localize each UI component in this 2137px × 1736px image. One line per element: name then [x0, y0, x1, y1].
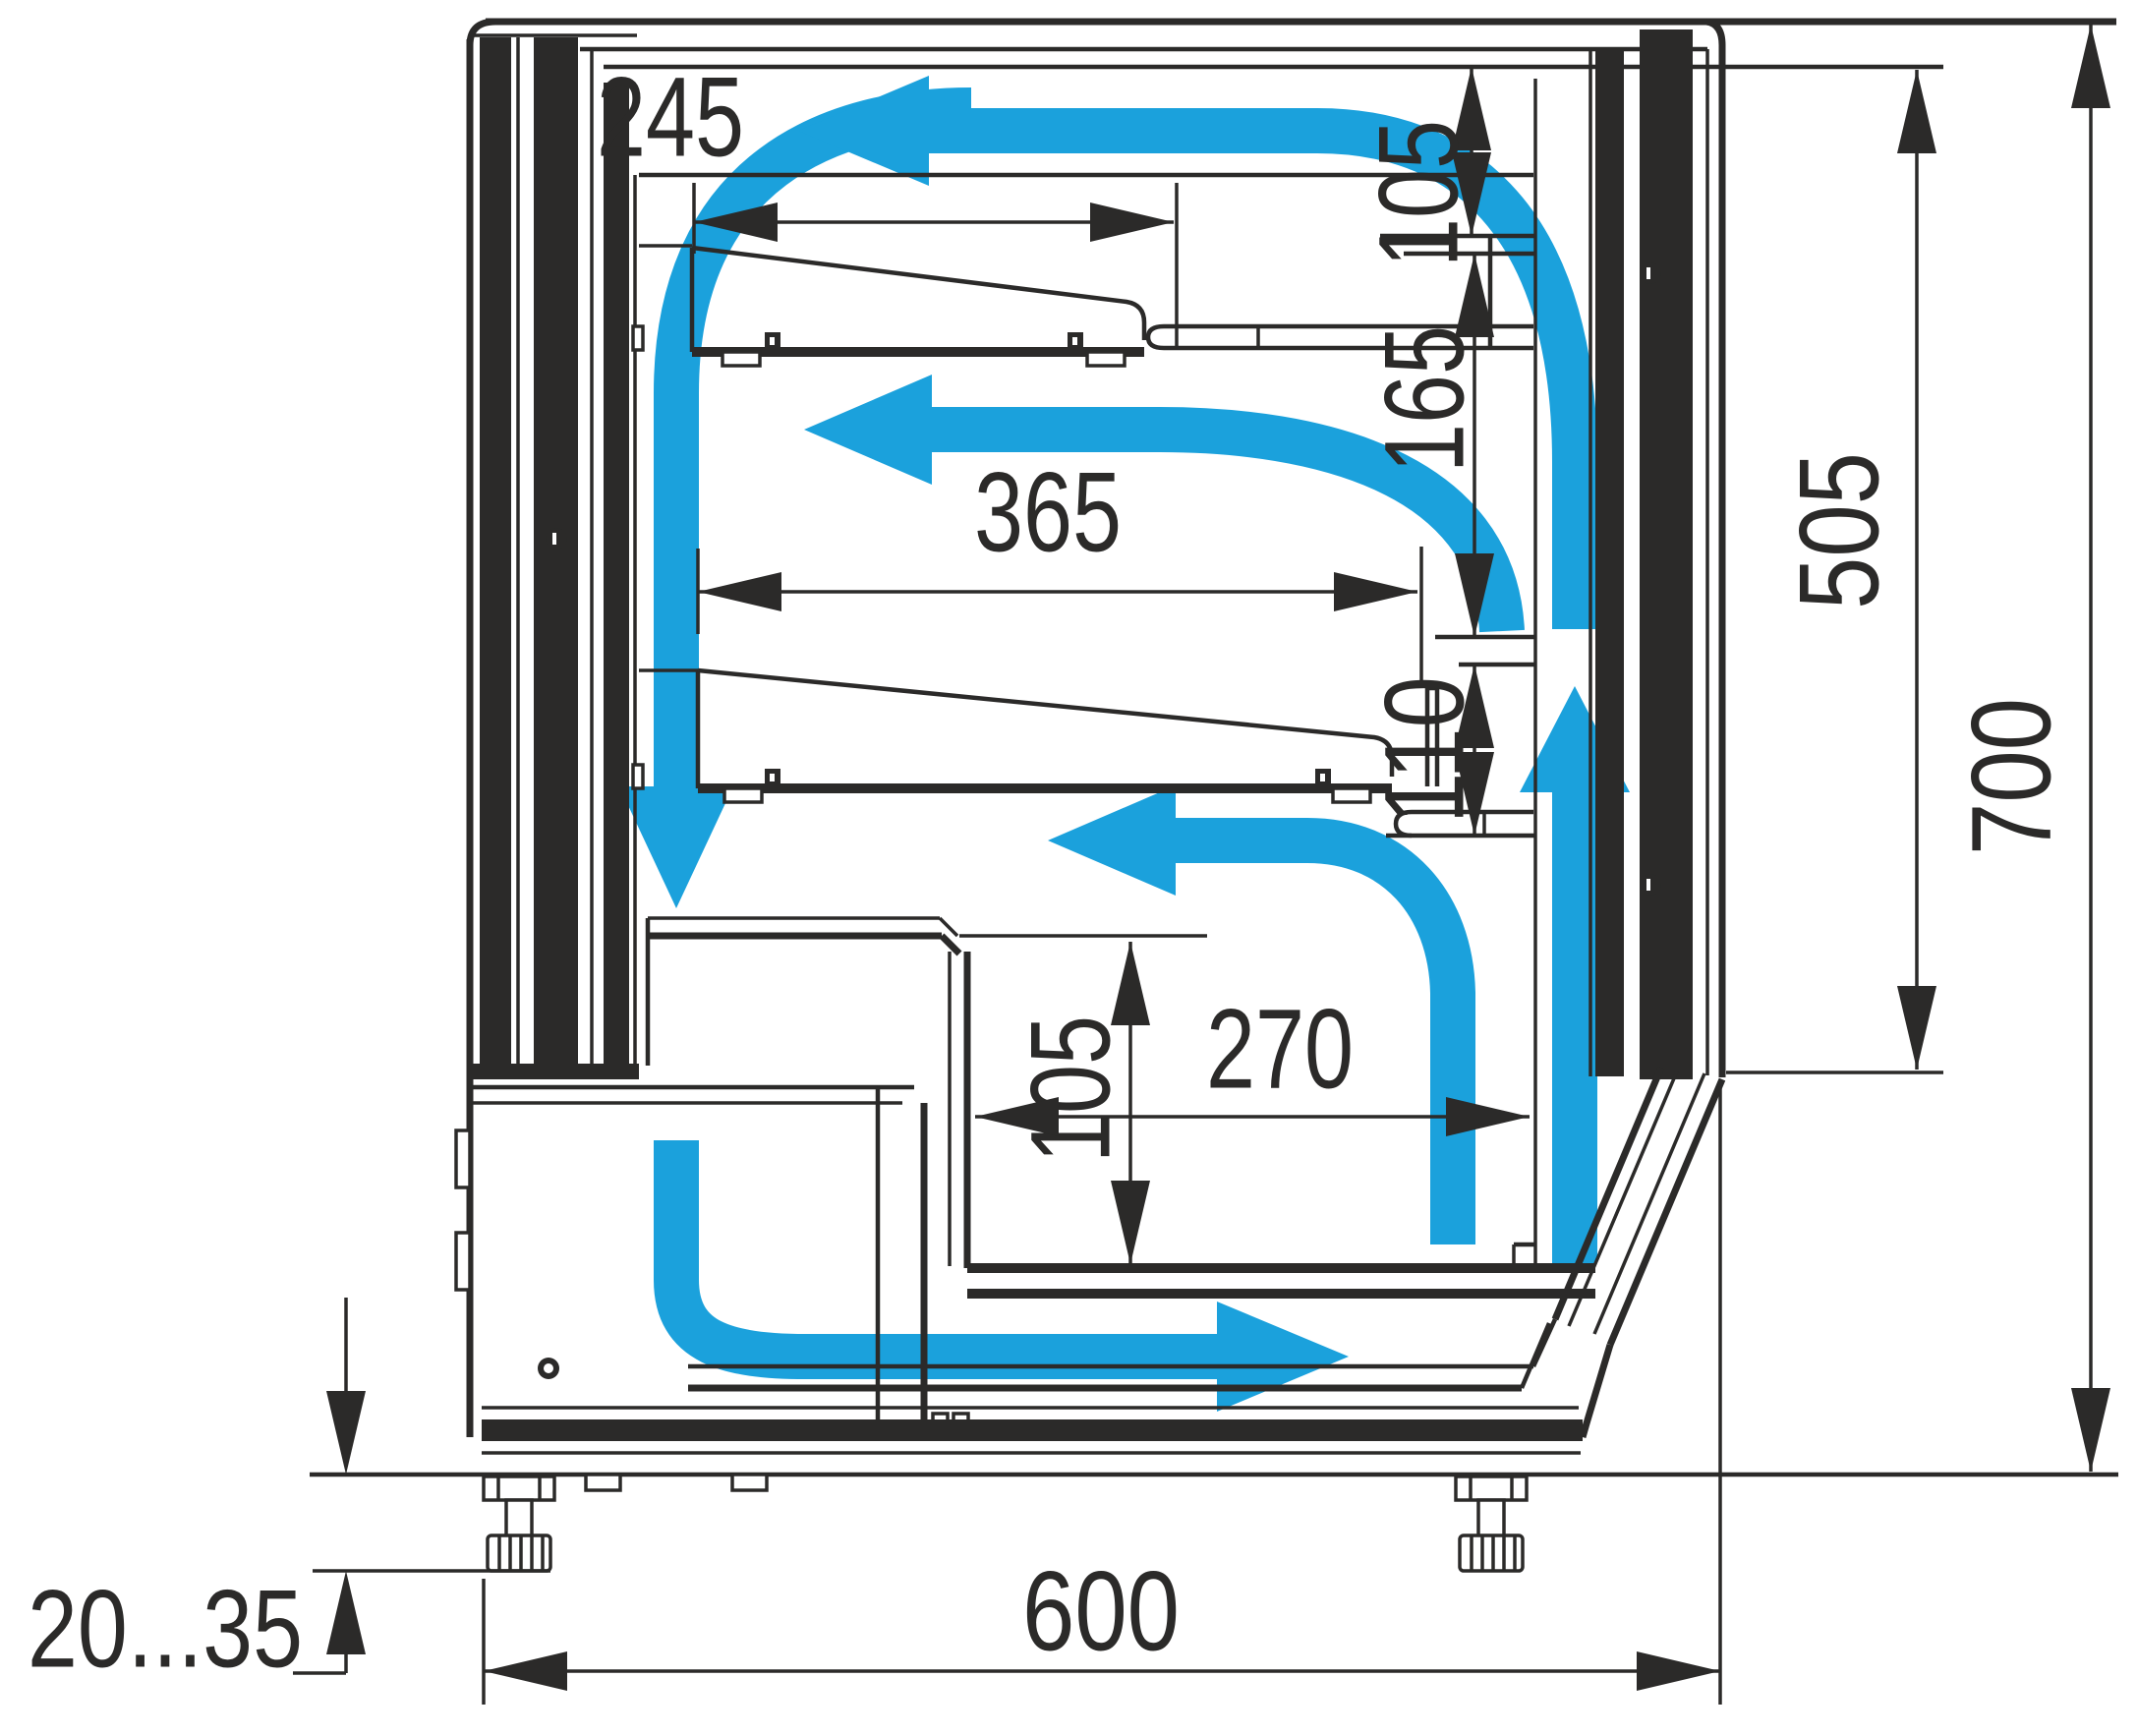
dim-label-105-top: 105 [1356, 120, 1481, 267]
dim-label-165: 165 [1361, 325, 1487, 473]
dim-label-110: 110 [1361, 676, 1487, 824]
base-pad [732, 1475, 767, 1490]
dim-label-feet: 20...35 [28, 1568, 303, 1691]
dim-label-245: 245 [597, 54, 744, 180]
dim-shelf-gap: 165 [1361, 254, 1494, 637]
dim-label-270: 270 [1206, 986, 1354, 1112]
door-hinge [456, 1130, 470, 1187]
foot-left [484, 1476, 554, 1571]
base-band [482, 1419, 1583, 1441]
dim-shelf2-width: 365 [698, 449, 1421, 688]
dim-inner-height: 505 [1726, 70, 1943, 1072]
dim-label-105-well: 105 [1008, 1015, 1133, 1163]
airflow-arrow-left-mid-icon [804, 375, 932, 485]
back-wall [470, 22, 643, 1437]
dim-well-height: 105 [959, 936, 1207, 1264]
dim-label-700: 700 [1948, 698, 2074, 855]
glass-pane [1640, 29, 1693, 1079]
dim-top-gap: 105 [1356, 67, 1491, 267]
airflow-arrow-left-top-icon [798, 76, 929, 186]
base [310, 1408, 2118, 1490]
base-pad [586, 1475, 620, 1490]
technical-drawing-page: 245 105 365 165 110 105 [0, 0, 2137, 1736]
door-hinge [456, 1233, 470, 1290]
airflow-bottom-return [676, 1140, 1217, 1357]
dim-label-600: 600 [1022, 1548, 1180, 1674]
airflow-arrow-right-icon [1217, 1302, 1349, 1412]
glass-pane [1595, 49, 1624, 1076]
rail-end-cap [1148, 326, 1164, 348]
dim-label-365: 365 [974, 449, 1122, 575]
cross-section-drawing: 245 105 365 165 110 105 [0, 0, 2137, 1736]
foot-right [1456, 1476, 1527, 1571]
back-wall-bottom-cap [470, 1064, 639, 1079]
shelf-support-nub [633, 765, 643, 788]
dim-label-505: 505 [1776, 452, 1902, 609]
dim-overall-height: 700 [1948, 25, 2110, 1472]
well-deck [967, 1268, 1595, 1294]
shelf-support-nub [633, 326, 643, 350]
airflow-arrow-left-well-icon [1048, 785, 1176, 896]
dim-well-gap: 110 [1361, 665, 1494, 836]
